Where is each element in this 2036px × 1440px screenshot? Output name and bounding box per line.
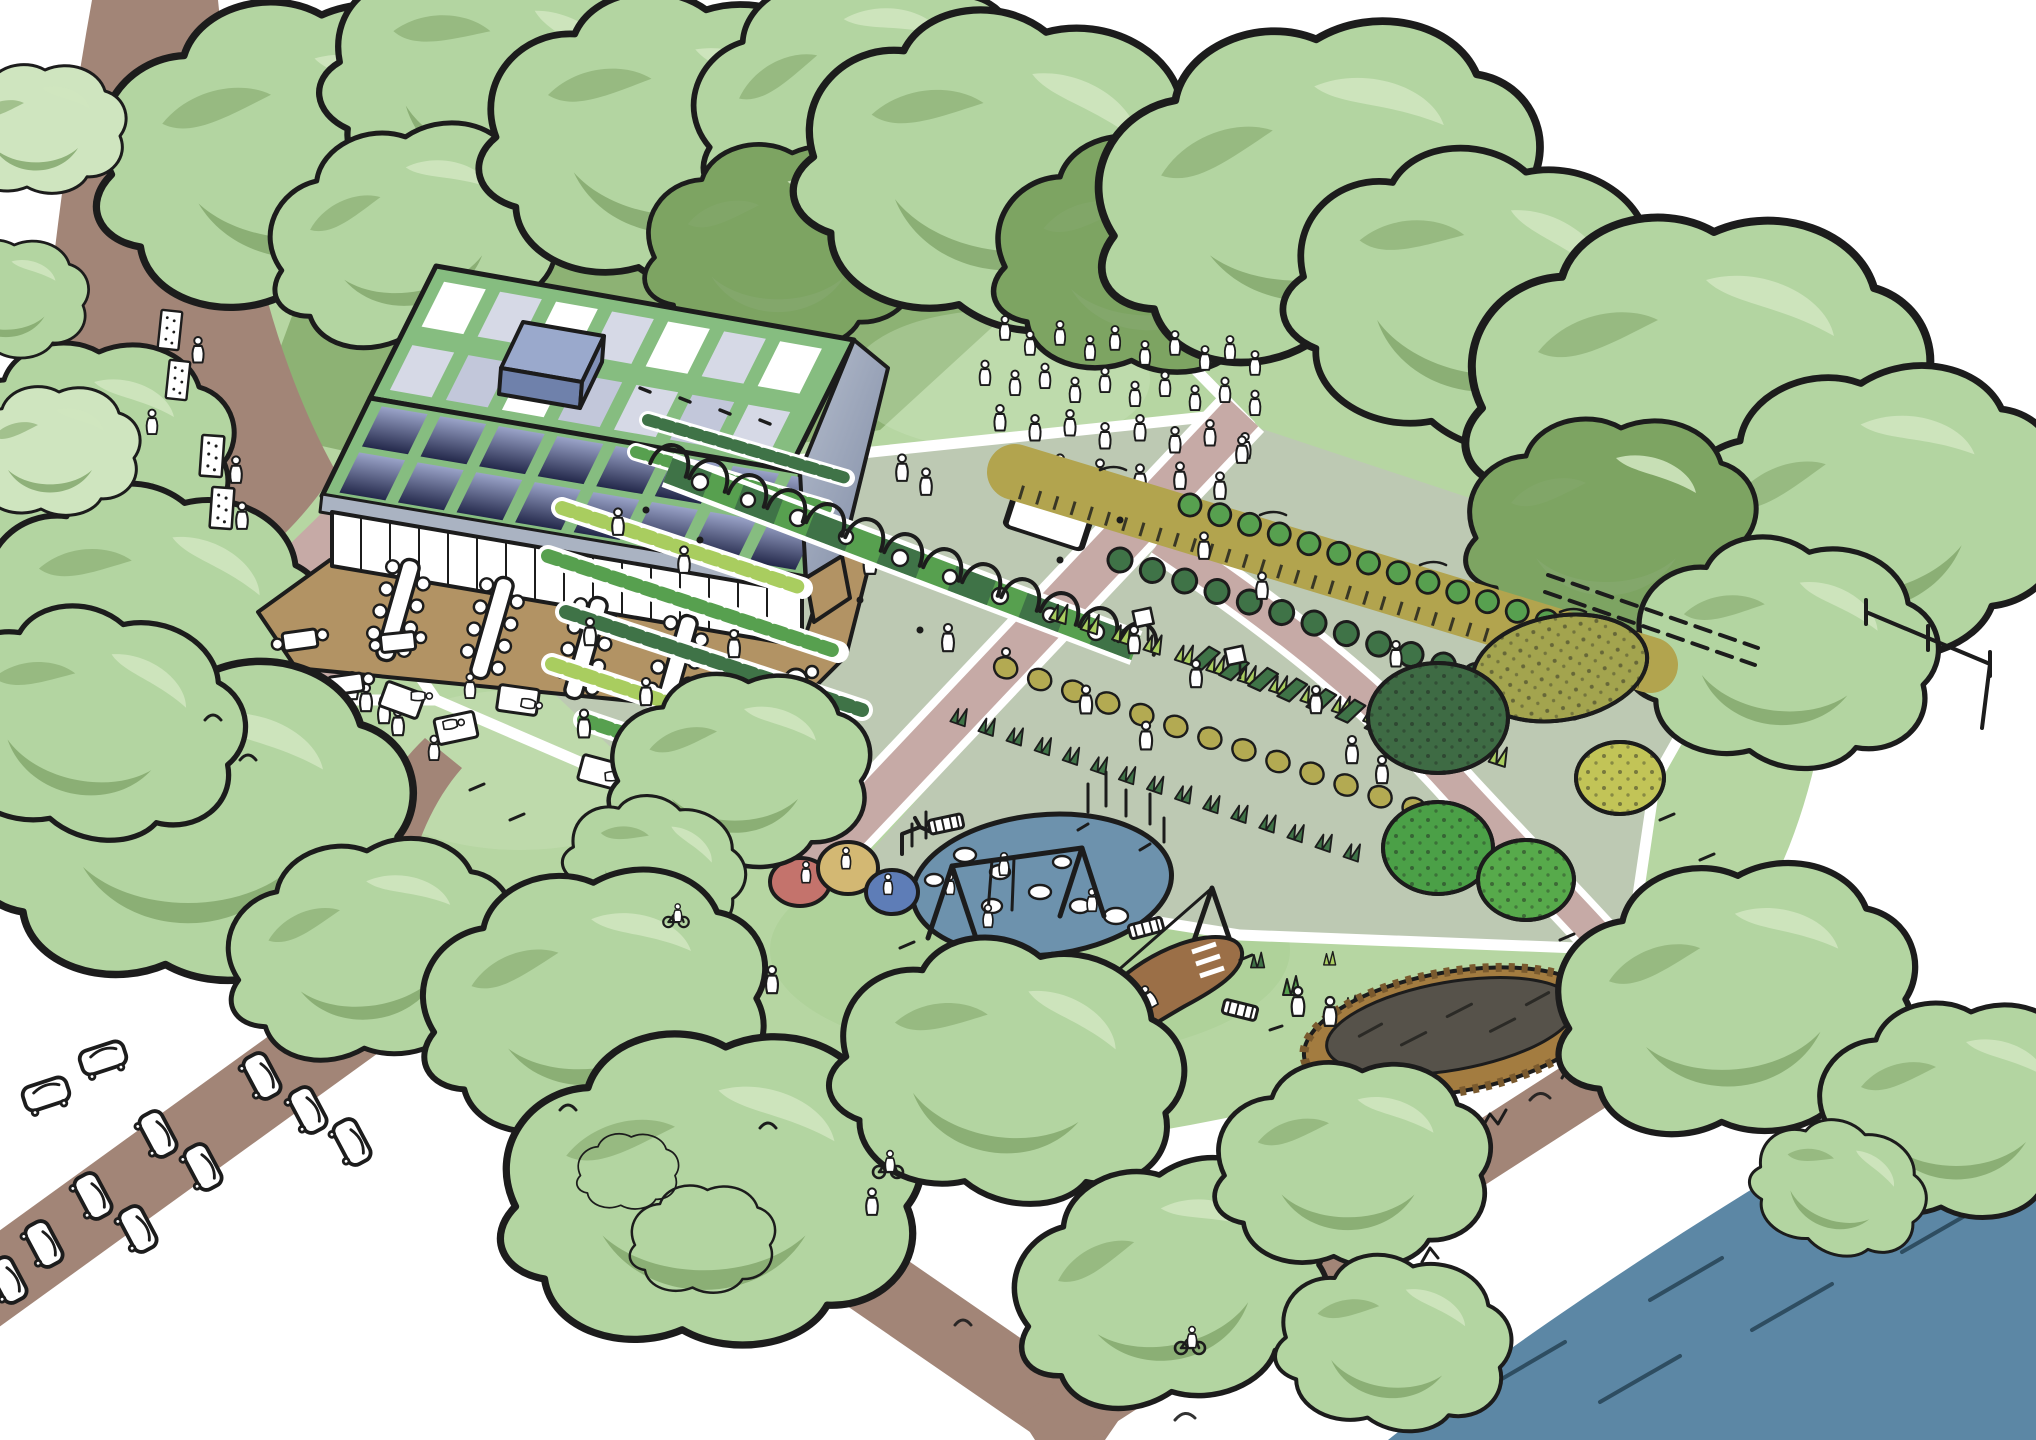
illustration-stage xyxy=(0,0,2036,1440)
site-plan-illustration xyxy=(0,0,2036,1440)
rooftop-plant-box xyxy=(499,322,604,408)
